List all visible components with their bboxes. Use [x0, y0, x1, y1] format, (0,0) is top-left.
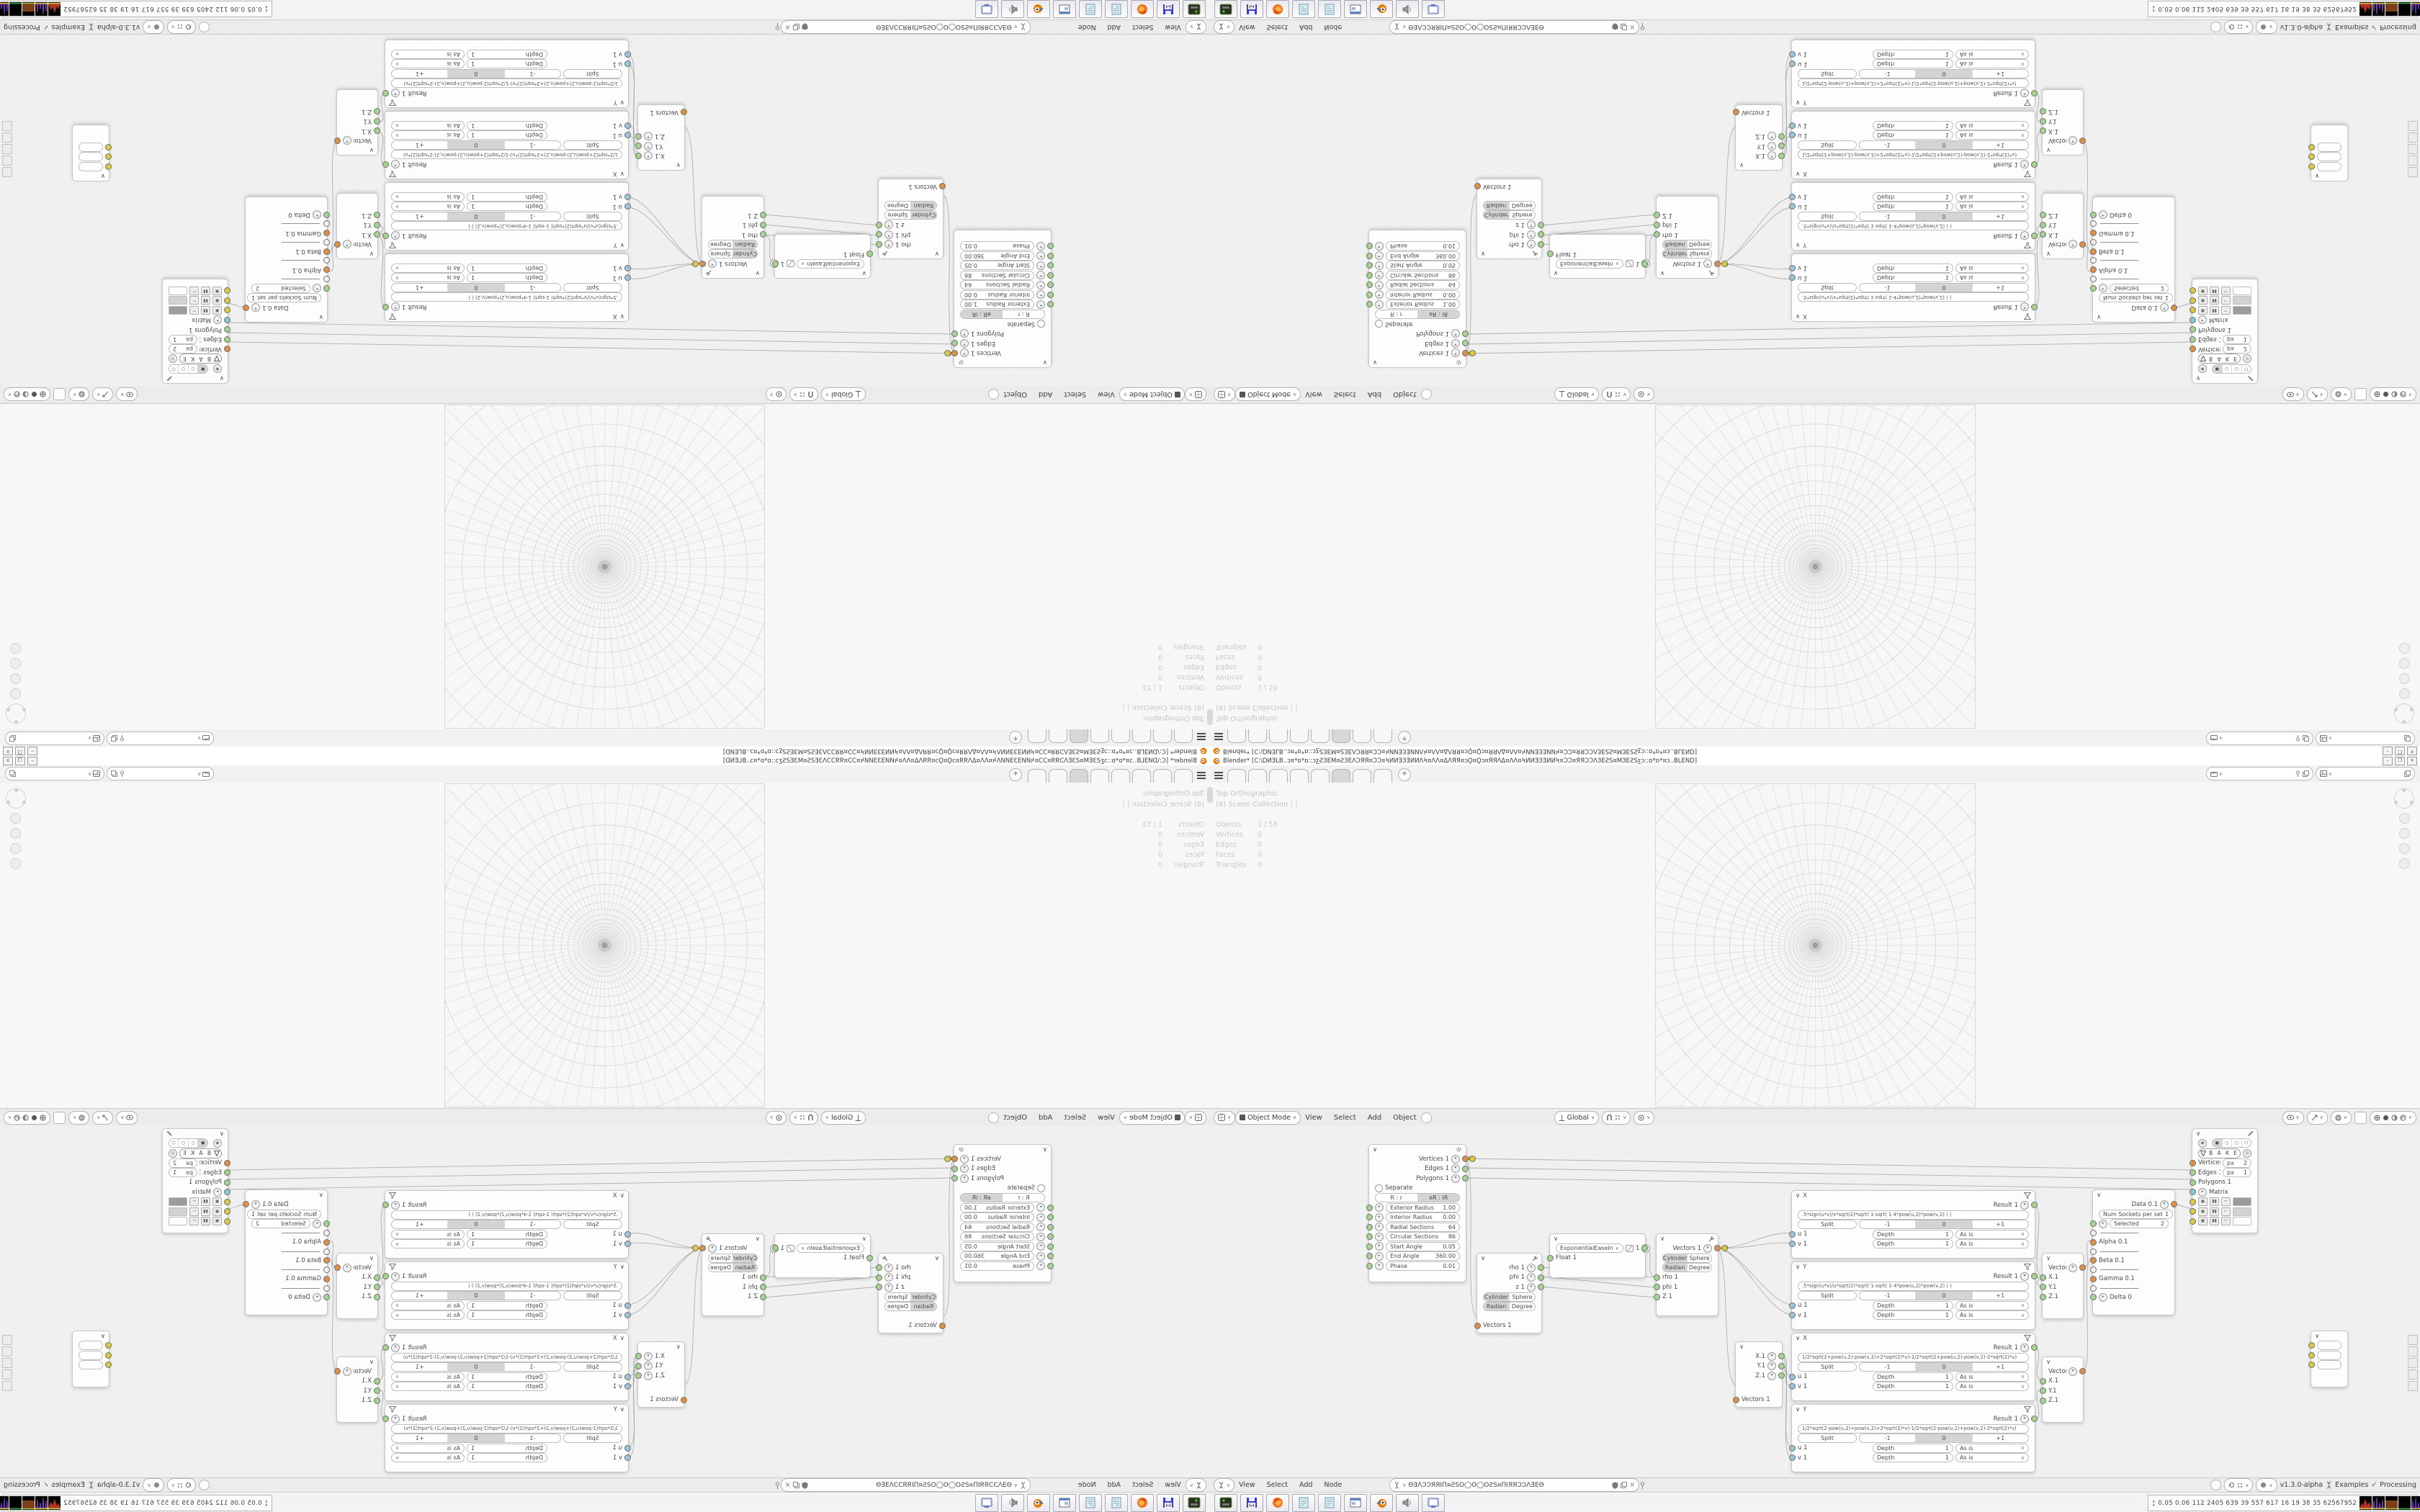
socket-menu-icon[interactable]: ▾: [644, 142, 653, 150]
workspace-tab[interactable]: [1332, 769, 1350, 783]
u 1-input-socket[interactable]: [1789, 1302, 1796, 1309]
workspace-tab[interactable]: [1090, 729, 1109, 743]
node-header[interactable]: ∨: [702, 269, 763, 278]
number-field[interactable]: Circular Sections86: [960, 1232, 1034, 1241]
Z 1-input-socket[interactable]: [760, 1294, 766, 1300]
segment-cylinder[interactable]: Cylinder: [910, 1293, 936, 1301]
segmented-control[interactable]: R : reR : iR: [1375, 1193, 1460, 1202]
rho 1-output-socket[interactable]: [876, 241, 882, 248]
node-header[interactable]: ∨Y: [385, 1405, 628, 1414]
formula-field[interactable]: .5*sign(u*v)/v*sqrt(2)*sqrt( 1-sqrt( 1-4…: [1798, 292, 2029, 302]
collapse-chevron-icon[interactable]: ∨: [1554, 270, 1558, 277]
display-mode-0[interactable]: ◼: [2213, 365, 2223, 373]
depth-field[interactable]: Depth1: [1873, 1453, 1953, 1462]
expand-diamond-icon[interactable]: ▸: [2099, 1293, 2107, 1302]
workspace-tab[interactable]: [1248, 769, 1267, 783]
segment-+1[interactable]: +1: [1973, 1292, 2028, 1300]
restore-button[interactable]: ❐: [2395, 747, 2405, 756]
mode-dropdown[interactable]: Object Mode∨: [1235, 1111, 1301, 1125]
socket-menu-icon[interactable]: ▾: [1703, 1244, 1712, 1253]
Beta 0.1-input-socket[interactable]: [323, 248, 330, 255]
collapse-chevron-icon[interactable]: ∨: [1373, 1146, 1377, 1153]
number-field[interactable]: Selected2: [251, 1219, 310, 1228]
segment--1[interactable]: -1: [1860, 284, 1916, 292]
display-mode-3[interactable]: ⬡: [2242, 1139, 2251, 1147]
restore-button[interactable]: ❐: [15, 747, 25, 756]
viewport-3d[interactable]: Top Orthographic(8) Scene Collection | |…: [1210, 783, 2420, 1108]
socket-menu-icon[interactable]: ▾: [1527, 1264, 1536, 1272]
expand-diamond-icon[interactable]: ▸: [1375, 1252, 1384, 1261]
separate-checkbox[interactable]: [1375, 1184, 1383, 1192]
update-dropdown[interactable]: ∨: [167, 20, 196, 34]
socket-menu-icon[interactable]: ▾: [2069, 1367, 2077, 1376]
easing-dropdown[interactable]: ExponentialEaseIn∨: [1556, 1243, 1623, 1253]
menu-add[interactable]: Add: [1363, 391, 1386, 399]
empty-input-socket[interactable]: [2090, 239, 2097, 246]
expand-diamond-icon[interactable]: ▸: [313, 1220, 321, 1228]
segment-0[interactable]: 0: [1916, 284, 1972, 292]
node-header[interactable]: ∨: [1550, 269, 1645, 278]
histogram-thumbnail-4[interactable]: [2411, 2, 2420, 16]
expand-diamond-icon[interactable]: ▸: [1036, 290, 1045, 299]
torus-node[interactable]: ∨Vertices 1▾Edges 1▾Polygons 1▾SeparateR…: [1368, 230, 1466, 368]
socket-menu-icon[interactable]: ▾: [2020, 1272, 2029, 1281]
segment-cylinder[interactable]: Cylinder: [1663, 250, 1688, 258]
grid-toggle-icon[interactable]: [11, 643, 22, 654]
levels-icon[interactable]: ▮▮: [201, 296, 210, 305]
search-circle[interactable]: [2210, 22, 2221, 32]
segment-+1[interactable]: +1: [392, 1363, 447, 1371]
rho 1-input-socket[interactable]: [1654, 1274, 1660, 1281]
taskbar-button-blender[interactable]: [1027, 1494, 1050, 1512]
display-mode-2[interactable]: ○: [179, 365, 189, 373]
segment-radian[interactable]: Radian: [732, 240, 757, 248]
palette-icon[interactable]: ▣: [212, 287, 222, 295]
socket-menu-icon[interactable]: ▾: [1451, 1155, 1460, 1164]
u 1-input-socket[interactable]: [1789, 203, 1796, 210]
node-header[interactable]: ∨: [2311, 171, 2347, 181]
segment-+1[interactable]: +1: [392, 284, 447, 292]
search-circle[interactable]: [988, 1112, 999, 1123]
node-editor-type-dropdown[interactable]: ∨: [1186, 1478, 1206, 1492]
socket-menu-icon[interactable]: ▾: [2020, 1201, 2029, 1210]
value-pill[interactable]: px2: [2223, 344, 2251, 354]
histogram-thumbnail-3[interactable]: [9, 1496, 22, 1510]
sidebar-tab[interactable]: [2, 1381, 12, 1391]
collapse-chevron-icon[interactable]: ∨: [369, 251, 374, 258]
depth-field[interactable]: Depth1: [1873, 264, 1953, 273]
display-mode-2[interactable]: ○: [179, 1139, 189, 1147]
offset-segments[interactable]: -10+1: [391, 1220, 561, 1229]
visibility-dropdown[interactable]: ∨: [116, 388, 138, 402]
collapse-chevron-icon[interactable]: ∨: [319, 314, 323, 321]
Z.1-input-socket[interactable]: [2040, 1294, 2046, 1300]
bake-button[interactable]: B A K E: [2198, 1148, 2241, 1158]
expand-diamond-icon[interactable]: ▸: [1036, 1203, 1045, 1212]
sidebar-tab[interactable]: [2, 144, 12, 154]
Polygons 1-output-socket[interactable]: [951, 1175, 958, 1182]
socket-menu-icon[interactable]: ▾: [343, 240, 351, 248]
formula-node-x1[interactable]: ∨XResult 1▾.5*sign(u*v)/v*sqrt(2)*sqrt( …: [1791, 1190, 2035, 1259]
scene-selector[interactable]: ∨: [2206, 767, 2313, 780]
node-editor[interactable]: ∨Vertices 1▾Edges 1▾Polygons 1▾SeparateR…: [0, 1126, 1210, 1477]
workspace-tab[interactable]: [1353, 769, 1371, 783]
processing-checkbox[interactable]: ✓: [43, 23, 49, 31]
display-mode-1[interactable]: ○: [2223, 365, 2233, 373]
socket-menu-icon[interactable]: ▾: [2020, 1344, 2029, 1352]
empty-input-socket[interactable]: [323, 1285, 330, 1292]
pin-icon[interactable]: [774, 1482, 781, 1489]
formula-field[interactable]: .5*sign(u*v)/u*sqrt(2)*sqrt( 1-sqrt( 1-4…: [1798, 221, 2029, 230]
menu-select[interactable]: Select: [1059, 1114, 1090, 1122]
view-layer-field[interactable]: [17, 734, 86, 742]
collapse-chevron-icon[interactable]: ∨: [2046, 251, 2051, 258]
wrap-dropdown[interactable]: As is∨: [1955, 1382, 2029, 1391]
Data 0.1-output-socket[interactable]: [2171, 305, 2177, 311]
draw-style-dropdown[interactable]: ∨: [2256, 20, 2277, 34]
number-field[interactable]: Selected2: [251, 284, 310, 293]
segment-0[interactable]: 0: [1916, 70, 1972, 78]
Edges 1-input-socket[interactable]: [224, 336, 230, 343]
toolbar-collapsed-tab[interactable]: [1207, 787, 1210, 803]
v 1-input-socket[interactable]: [1789, 265, 1796, 271]
socket-menu-icon[interactable]: ▾: [251, 303, 260, 312]
levels-icon[interactable]: ▮▮: [2210, 1217, 2219, 1225]
segment--1[interactable]: -1: [504, 1363, 560, 1371]
orientation-dropdown[interactable]: Global∨: [821, 388, 866, 402]
view-layer-selector[interactable]: ∨: [2316, 732, 2415, 745]
wrap-dropdown[interactable]: As is∨: [1955, 59, 2029, 68]
number-field[interactable]: Circular Sections86: [1386, 1232, 1460, 1241]
copy-icon[interactable]: [9, 735, 16, 742]
offset-segments[interactable]: -10+1: [391, 283, 561, 292]
socket-menu-icon[interactable]: ▾: [343, 136, 351, 145]
v 1-input-socket[interactable]: [1789, 194, 1796, 200]
proportional-edit-dropdown[interactable]: ∨: [1633, 388, 1654, 402]
formula-field[interactable]: .5*sign(u*v)/u*sqrt(2)*sqrt( 1-sqrt( 1-4…: [391, 221, 622, 230]
socket-menu-icon[interactable]: ▾: [1451, 348, 1460, 357]
wrap-dropdown[interactable]: As is∨: [1955, 1239, 2029, 1248]
depth-field[interactable]: Depth1: [1873, 50, 1953, 59]
separate-checkbox[interactable]: [1375, 320, 1383, 328]
unlink-icon[interactable]: ×: [1629, 23, 1635, 31]
view-layer-field[interactable]: [2334, 770, 2403, 778]
copy-icon[interactable]: [2303, 735, 2309, 742]
v 1-input-socket[interactable]: [1789, 1312, 1796, 1318]
bake-settings-icon[interactable]: ◎: [169, 1149, 177, 1158]
display-mode-1[interactable]: ○: [2223, 1139, 2233, 1147]
wrap-dropdown[interactable]: As is∨: [391, 1453, 465, 1462]
socket-menu-icon[interactable]: ▾: [1767, 1352, 1776, 1361]
sidebar-tab[interactable]: [2, 1346, 12, 1356]
taskbar-button-window-app[interactable]: [1053, 1, 1076, 19]
expand-diamond-icon[interactable]: ▸: [1375, 251, 1384, 260]
blank-field[interactable]: [2317, 1360, 2341, 1369]
histogram-thumbnail-1[interactable]: [2372, 1496, 2385, 1510]
mode-dropdown[interactable]: Object Mode∨: [1119, 388, 1185, 402]
Vectors 1-input-socket[interactable]: [1474, 183, 1481, 189]
wrap-dropdown[interactable]: As is∨: [391, 264, 465, 273]
segment-degree[interactable]: Degree: [709, 240, 732, 248]
split-button[interactable]: Split: [1798, 1291, 1857, 1300]
collapse-chevron-icon[interactable]: ∨: [935, 1255, 939, 1262]
shading-modes[interactable]: ∨: [4, 388, 50, 402]
camera-icon[interactable]: [2399, 658, 2410, 669]
depth-field[interactable]: Depth1: [1873, 1444, 1953, 1453]
menu-select[interactable]: Select: [1330, 391, 1361, 399]
number-field[interactable]: Phase0.01: [1386, 1261, 1460, 1271]
wrap-dropdown[interactable]: As is∨: [1955, 1372, 2029, 1382]
collapse-chevron-icon[interactable]: ∨: [1481, 251, 1485, 258]
node-header[interactable]: ∨: [775, 269, 870, 278]
Delta 0-input-socket[interactable]: [323, 212, 330, 218]
Result 1-output-socket[interactable]: [382, 1202, 389, 1208]
palette-icon[interactable]: ▣: [212, 1207, 222, 1216]
Vectors 1-output-socket[interactable]: [334, 1368, 341, 1374]
Matrix-input-socket[interactable]: [2190, 317, 2196, 323]
wrap-dropdown[interactable]: As is∨: [391, 1239, 465, 1248]
workspace-tab[interactable]: [1269, 729, 1288, 743]
depth-field[interactable]: Depth1: [467, 59, 547, 68]
menu-add[interactable]: Add: [1103, 23, 1125, 31]
number-field[interactable]: Interior Radius0.00: [1386, 290, 1460, 300]
node-header[interactable]: ∨: [2192, 1129, 2257, 1138]
segment-sphere[interactable]: Sphere: [885, 211, 910, 219]
collapse-chevron-icon[interactable]: ∨: [1796, 1192, 1800, 1200]
segment-0[interactable]: 0: [1916, 1363, 1972, 1371]
wrap-dropdown[interactable]: As is∨: [1955, 121, 2029, 130]
taskbar-button-firefox[interactable]: [1266, 1, 1289, 19]
split-button[interactable]: Split: [1798, 1362, 1857, 1372]
formula-field[interactable]: .5*sign(u*v)/v*sqrt(2)*sqrt( 1-sqrt( 1-4…: [391, 292, 622, 302]
Alpha 0.1-input-socket[interactable]: [2090, 266, 2097, 273]
node-tree-selector[interactable]: ∨ ΘƎΛϽϽЯЯIΠ¤ƧSO◯O◯OƧS¤ΠIЯЯϽϽΛƎEΘ ×: [1389, 1478, 1639, 1492]
Polygons 1-input-socket[interactable]: [2190, 1179, 2196, 1186]
depth-field[interactable]: Depth1: [1873, 202, 1953, 211]
workspace-tab[interactable]: [1174, 769, 1193, 783]
collapse-chevron-icon[interactable]: ∨: [1796, 171, 1800, 178]
depth-field[interactable]: Depth1: [467, 1372, 547, 1382]
Vectors 1-output-socket[interactable]: [699, 1245, 706, 1251]
Vectors 1-input-socket[interactable]: [681, 1397, 687, 1403]
color-swatch[interactable]: [2233, 306, 2251, 315]
segment-cylinder[interactable]: Cylinder: [910, 211, 936, 219]
collapse-chevron-icon[interactable]: ∨: [1554, 1236, 1558, 1243]
expand-diamond-icon[interactable]: ▸: [1036, 261, 1045, 270]
collapse-chevron-icon[interactable]: ∨: [620, 1264, 624, 1271]
scene-name-field[interactable]: [127, 734, 196, 742]
number-field[interactable]: Interior Radius0.00: [960, 1212, 1034, 1222]
vector-out-node[interactable]: ∨X.1▾Y.1▾Z.1▾Vectors 1: [1735, 104, 1783, 171]
wrap-dropdown[interactable]: As is∨: [1955, 1453, 2029, 1462]
histogram-thumbnail-3[interactable]: [9, 2, 22, 16]
overlays-dropdown[interactable]: ∨: [2331, 1111, 2352, 1125]
socket-menu-icon[interactable]: ▾: [884, 220, 893, 229]
node-header[interactable]: ∨Y: [385, 240, 628, 250]
collapse-chevron-icon[interactable]: ∨: [2097, 314, 2101, 321]
palette-icon[interactable]: ▣: [2198, 1197, 2208, 1206]
vector-in-node-b[interactable]: ∨Vectors 1▾X.1Y.1Z.1: [2042, 89, 2084, 156]
u 1-input-socket[interactable]: [624, 1445, 631, 1452]
Result 1-output-socket[interactable]: [2031, 304, 2038, 310]
sidebar-tab[interactable]: [2408, 156, 2418, 166]
node-header[interactable]: ∨Y: [1792, 98, 2035, 107]
search-circle[interactable]: [199, 22, 210, 32]
segmented-control[interactable]: R : reR : iR: [960, 310, 1045, 319]
number-field[interactable]: Phase0.01: [1386, 241, 1460, 251]
taskbar-button-floppy-64[interactable]: 64: [1157, 1494, 1180, 1512]
socket-menu-icon[interactable]: ▾: [391, 302, 400, 311]
curve-icon[interactable]: ⌐: [2221, 287, 2231, 295]
rho 1-input-socket[interactable]: [1654, 231, 1660, 238]
blank-field[interactable]: [79, 143, 103, 152]
Interior Radius-input-socket[interactable]: [1366, 1214, 1373, 1220]
vector-out-node[interactable]: ∨X.1▾Y.1▾Z.1▾Vectors 1: [637, 104, 685, 171]
menu-select[interactable]: Select: [1059, 391, 1090, 399]
curve-icon[interactable]: ⌐: [189, 1207, 199, 1216]
taskbar-button-notepad[interactable]: [1318, 1, 1341, 19]
segment-sphere[interactable]: Sphere: [1510, 1293, 1535, 1301]
depth-field[interactable]: Depth1: [467, 1310, 547, 1320]
formula-field[interactable]: .5*sign(u*v)/v*sqrt(2)*sqrt( 1-sqrt( 1-4…: [391, 1210, 622, 1220]
node-header[interactable]: ∨X: [1792, 1191, 2035, 1200]
view-layer-field[interactable]: [17, 770, 86, 778]
segment-er-ir[interactable]: eR : iR: [1418, 1194, 1460, 1202]
Y.1-input-socket[interactable]: [374, 118, 380, 125]
Vertices 1-output-socket[interactable]: [951, 350, 958, 356]
segmented-control[interactable]: RadianDegree: [1662, 1263, 1712, 1272]
formula-field[interactable]: .5*sign(u*v)/u*sqrt(2)*sqrt( 1-sqrt( 1-4…: [1798, 1282, 2029, 1291]
segment--1[interactable]: -1: [504, 1292, 560, 1300]
blank-field[interactable]: [2317, 1341, 2341, 1350]
node-header[interactable]: ∨Y: [1792, 1405, 2035, 1414]
segment-+1[interactable]: +1: [1973, 284, 2028, 292]
sidebar-tab[interactable]: [2, 132, 12, 143]
Edges 1-output-socket[interactable]: [951, 340, 958, 346]
menu-view[interactable]: View: [1160, 1481, 1186, 1489]
data-sockets-node[interactable]: ∨Data 0.1▾Num Sockets per set1▸Selected2…: [245, 197, 328, 323]
socket-menu-icon[interactable]: ▾: [2020, 160, 2029, 168]
unlink-icon[interactable]: ×: [1629, 1481, 1635, 1489]
segment-degree[interactable]: Degree: [1510, 1302, 1535, 1310]
grid-toggle-icon[interactable]: [11, 858, 22, 869]
expand-tray-icon[interactable]: ∧∧: [265, 1500, 268, 1507]
offset-segments[interactable]: -10+1: [391, 1291, 561, 1300]
wrap-dropdown[interactable]: As is∨: [391, 130, 465, 140]
node-header[interactable]: ∨X: [385, 1333, 628, 1343]
Vertices 1-output-socket[interactable]: [951, 1156, 958, 1162]
socket-menu-icon[interactable]: ▾: [884, 1283, 893, 1292]
input-socket[interactable]: [105, 163, 112, 170]
node-header[interactable]: ∨: [879, 1254, 943, 1263]
collapse-chevron-icon[interactable]: ∨: [1739, 1344, 1744, 1351]
split-button[interactable]: Split: [1798, 1434, 1857, 1443]
segment-degree[interactable]: Degree: [1688, 240, 1711, 248]
menu-hamburger-icon[interactable]: [1197, 733, 1206, 740]
workspace-tab[interactable]: [1290, 769, 1309, 783]
Y.1-input-socket[interactable]: [2040, 1387, 2046, 1394]
formula-field[interactable]: 1/2*sqrt(2+pow(u,2)-pow(v,2)+2*sqrt(2)*u…: [1798, 150, 2029, 159]
collapse-chevron-icon[interactable]: ∨: [1373, 359, 1377, 366]
processing-checkbox[interactable]: ✓: [2371, 1481, 2377, 1489]
snap-dropdown[interactable]: ∨: [1602, 1111, 1631, 1125]
taskbar-button-archive-app[interactable]: [1183, 1, 1206, 19]
node-header[interactable]: ∨: [879, 249, 943, 258]
workspace-tab[interactable]: [1290, 729, 1309, 743]
display-mode-3[interactable]: ⬡: [2242, 365, 2251, 373]
overlays-dropdown[interactable]: ∨: [68, 388, 89, 402]
segmented-control[interactable]: RadianDegree: [708, 1263, 758, 1272]
node-header[interactable]: ∨X: [385, 1191, 628, 1200]
Edges 1-output-socket[interactable]: [951, 1166, 958, 1172]
segmented-control[interactable]: CylinderSphere: [1483, 210, 1536, 220]
update-dropdown[interactable]: ∨: [2224, 1478, 2253, 1492]
X.1-input-socket[interactable]: [374, 1274, 380, 1281]
visibility-dropdown[interactable]: ∨: [2282, 1111, 2304, 1125]
workspace-tab[interactable]: [1227, 769, 1246, 783]
socket-menu-icon[interactable]: ▾: [1451, 1174, 1460, 1183]
node-editor-type-dropdown[interactable]: ∨: [1214, 20, 1234, 34]
phi 1-input-socket[interactable]: [1654, 1284, 1660, 1290]
formula-field[interactable]: 1/2*sqrt(2+pow(u,2)-pow(v,2)+2*sqrt(2)*u…: [391, 150, 622, 159]
segment-0[interactable]: 0: [447, 1220, 503, 1228]
wrap-dropdown[interactable]: As is∨: [1955, 1310, 2029, 1320]
number-field[interactable]: Radial Sections64: [1386, 280, 1460, 289]
segment-+1[interactable]: +1: [1973, 212, 2028, 220]
socket-menu-icon[interactable]: ▾: [1527, 220, 1536, 229]
Polygons 1-input-socket[interactable]: [2190, 326, 2196, 333]
socket-menu-icon[interactable]: ▾: [343, 1367, 351, 1376]
z 1-output-socket[interactable]: [1538, 222, 1544, 228]
taskbar-button-notepad[interactable]: [1292, 1494, 1315, 1512]
socket-menu-icon[interactable]: ▾: [884, 1273, 893, 1282]
Matrix-input-socket[interactable]: [224, 317, 230, 323]
collapse-chevron-icon[interactable]: ∨: [1796, 1335, 1800, 1342]
taskbar-button-speaker[interactable]: [1001, 1, 1024, 19]
pin-icon[interactable]: [1639, 1482, 1646, 1489]
Delta 0-input-socket[interactable]: [2090, 1294, 2097, 1300]
segment-radian[interactable]: Radian: [1484, 202, 1510, 210]
display-mode-buttons[interactable]: ◼○○⬡: [2212, 364, 2251, 374]
node-header[interactable]: ∨: [337, 1357, 377, 1367]
node-header[interactable]: ∨: [2043, 1357, 2083, 1367]
gizmo-dropdown[interactable]: ∨: [2307, 1111, 2328, 1125]
segment-radian[interactable]: Radian: [910, 1302, 936, 1310]
workspace-tab[interactable]: [1028, 729, 1047, 743]
split-button[interactable]: Split: [563, 212, 622, 221]
formula-node-y1[interactable]: ∨YResult 1▾.5*sign(u*v)/u*sqrt(2)*sqrt( …: [385, 182, 629, 251]
segment--1[interactable]: -1: [1860, 141, 1916, 149]
curve-icon[interactable]: ⌐: [189, 306, 199, 315]
segmented-control[interactable]: R : reR : iR: [960, 1193, 1045, 1202]
collapse-chevron-icon[interactable]: ∨: [2097, 1192, 2101, 1199]
rho 1-output-socket[interactable]: [1538, 241, 1544, 248]
node-tree-selector[interactable]: ∨ ΘƎΛϽϽЯЯIΠ¤ƧSO◯O◯OƧS¤ΠIЯЯϽϽΛƎEΘ ×: [781, 20, 1031, 34]
collapse-chevron-icon[interactable]: ∨: [1043, 359, 1047, 366]
examples-menu[interactable]: Examples: [2335, 23, 2368, 31]
segmented-control[interactable]: CylinderSphere: [1483, 1292, 1536, 1302]
input-socket[interactable]: [2308, 1352, 2315, 1359]
segment-cylinder[interactable]: Cylinder: [1484, 1293, 1510, 1301]
taskbar-button-firefox[interactable]: [1131, 1494, 1154, 1512]
menu-add[interactable]: Add: [1363, 1114, 1386, 1122]
eye-toggle[interactable]: ◉: [213, 1139, 222, 1148]
depth-field[interactable]: Depth1: [1873, 59, 1953, 68]
number-field[interactable]: Num Sockets per set1: [247, 293, 321, 302]
menu-add[interactable]: Add: [1295, 23, 1317, 31]
node-header[interactable]: ∨Y: [385, 1262, 628, 1272]
segment-0[interactable]: 0: [447, 1363, 503, 1371]
